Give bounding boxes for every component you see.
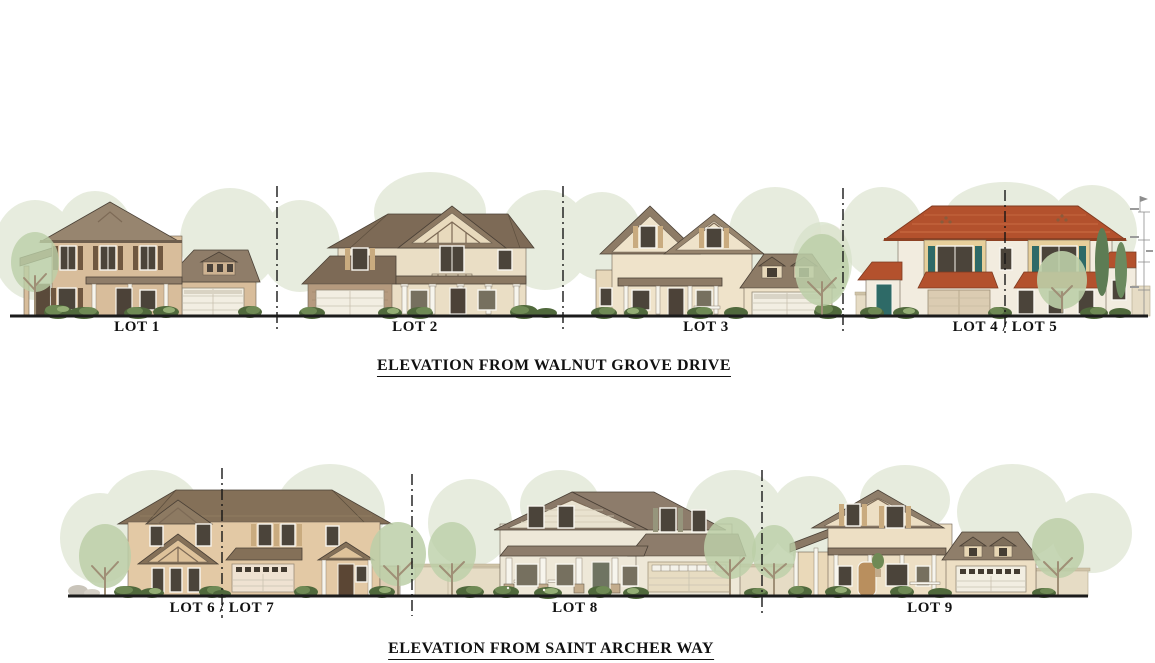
lot-label-9: LOT 9 [907, 600, 953, 617]
lot-label-3: LOT 3 [683, 319, 729, 336]
lot-6-7-duplex [118, 490, 400, 596]
lot-label-1: LOT 1 [114, 319, 160, 336]
elevation-sheet: LOT 1 LOT 2 LOT 3 LOT 4 / LOT 5 ELEVATIO… [0, 0, 1155, 663]
saint-archer-title: ELEVATION FROM SAINT ARCHER WAY [388, 640, 714, 660]
lot-2-house [302, 206, 534, 316]
lot-label-8: LOT 8 [552, 600, 598, 617]
lot-label-6-7: LOT 6 / LOT 7 [170, 600, 275, 617]
lot-label-4-5: LOT 4 / LOT 5 [953, 319, 1058, 336]
walnut-grove-title: ELEVATION FROM WALNUT GROVE DRIVE [377, 357, 731, 377]
lot-label-2: LOT 2 [392, 319, 438, 336]
